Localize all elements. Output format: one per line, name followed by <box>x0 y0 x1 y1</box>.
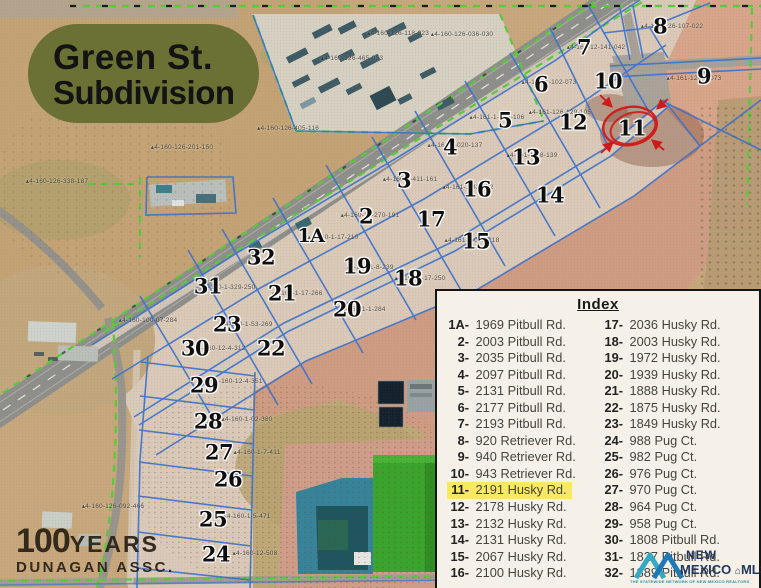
parcel-id: ▴4-160-126-405-116 <box>257 124 319 132</box>
parcel-id: ▴4-160-100-07-284 <box>119 316 178 324</box>
parcel-id: ▴4-160-126-201-150 <box>151 143 214 151</box>
index-entry-27: 27- 970 Pug Ct. <box>601 482 755 499</box>
parcel-id: ▴4-160-1-5-471 <box>223 512 270 520</box>
parcel-id: ▴4-160-12-508 <box>233 549 278 557</box>
parcel-id: ▴4-160-126-118-023 <box>367 29 429 37</box>
map-title-line2: Subdivision <box>53 76 235 109</box>
lot-label-14: 14 <box>536 183 564 208</box>
lot-label-28: 28 <box>194 409 222 434</box>
parcel-id: ▴4-161-12-141-042 <box>567 43 626 51</box>
index-entry-19: 19- 1972 Husky Rd. <box>601 350 755 367</box>
lot-index-panel: Index 1A- 1969 Pitbull Rd.2- 2003 Pitbul… <box>435 289 761 588</box>
parcel-id: ▴4-160-126-092-466 <box>82 502 145 510</box>
index-entry-15: 15- 2067 Husky Rd. <box>447 549 601 566</box>
lot-label-30: 30 <box>181 336 209 361</box>
lot-label-32: 32 <box>247 245 275 270</box>
lot-label-6: 6 <box>534 72 548 97</box>
parcel-id: ▴4-160-126-338-187 <box>26 177 89 185</box>
index-title: Index <box>437 296 759 313</box>
watermark-100: 100 <box>16 522 70 560</box>
parcel-id: ▴4-161-1-102-073 <box>522 78 577 86</box>
lot-label-18: 18 <box>394 266 422 291</box>
lot-label-23: 23 <box>213 312 241 337</box>
index-entry-4: 4- 2097 Pitbull Rd. <box>447 367 601 384</box>
index-entry-9: 9- 940 Retriever Rd. <box>447 449 601 466</box>
index-entry-14: 14- 2131 Husky Rd. <box>447 532 601 549</box>
lot-label-20: 20 <box>333 297 361 322</box>
lot-label-24: 24 <box>202 542 230 567</box>
index-entry-24: 24- 988 Pug Ct. <box>601 433 755 450</box>
lot-label-16: 16 <box>463 177 491 202</box>
subdivision-map: ▴4-160-126-118-023▴4-160-126-036-030▴4-1… <box>0 0 761 588</box>
lot-label-29: 29 <box>190 373 218 398</box>
parcel-id: ▴4-160-1-02-380 <box>221 415 272 423</box>
lot-label-21: 21 <box>268 281 296 306</box>
index-entry-7: 7- 2193 Pitbull Rd. <box>447 416 601 433</box>
lot-label-11: 11 <box>618 116 646 141</box>
lot-label-2: 2 <box>359 204 373 229</box>
index-entry-5: 5- 2131 Pitbull Rd. <box>447 383 601 400</box>
index-entry-25: 25- 982 Pug Ct. <box>601 449 755 466</box>
index-entry-6: 6- 2177 Pitbull Rd. <box>447 400 601 417</box>
lot-label-17: 17 <box>417 207 445 232</box>
lot-label-22: 22 <box>257 336 285 361</box>
lot-label-9: 9 <box>697 64 711 89</box>
parcel-id: ▴4-160-12-4-351 <box>211 377 262 385</box>
lot-label-12: 12 <box>559 110 587 135</box>
index-entry-17: 17- 2036 Husky Rd. <box>601 317 755 334</box>
index-entry-22: 22- 1875 Husky Rd. <box>601 400 755 417</box>
index-entry-20: 20- 1939 Husky Rd. <box>601 367 755 384</box>
index-entry-29: 29- 958 Pug Ct. <box>601 516 755 533</box>
index-entry-1A: 1A- 1969 Pitbull Rd. <box>447 317 601 334</box>
mls-text-mexico-mls: MEXICO ⌂MLS <box>680 562 761 577</box>
index-entry-16: 16- 2100 Husky Rd. <box>447 565 601 582</box>
mls-logo: NEW MEXICO ⌂MLS THE STATEWIDE NETWORK OF… <box>626 546 761 588</box>
parcel-id: ▴4-160-1-7-411 <box>234 448 281 456</box>
lot-label-25: 25 <box>199 507 227 532</box>
index-entry-2: 2- 2003 Pitbull Rd. <box>447 334 601 351</box>
parcel-id: ▴4-161-126-3-073 <box>667 74 722 82</box>
parcel-id: ▴4-161-126-107-022 <box>641 22 704 30</box>
index-entry-10: 10- 943 Retriever Rd. <box>447 466 601 483</box>
mls-tagline: THE STATEWIDE NETWORK OF NEW MEXICO REAL… <box>630 579 761 584</box>
index-entry-23: 23- 1849 Husky Rd. <box>601 416 755 433</box>
lot-label-27: 27 <box>205 440 233 465</box>
mls-text-new: NEW <box>686 548 717 562</box>
map-title-line1: Green St. <box>53 40 213 75</box>
dunagan-watermark: 100YEARS DUNAGAN ASSC. <box>16 524 175 575</box>
parcel-id: ▴4-160-126-465-053 <box>321 54 384 62</box>
lot-label-4: 4 <box>443 135 457 160</box>
index-entry-28: 28- 964 Pug Ct. <box>601 499 755 516</box>
index-entry-26: 26- 976 Pug Ct. <box>601 466 755 483</box>
lot-label-3: 3 <box>397 168 411 193</box>
index-entry-12: 12- 2178 Husky Rd. <box>447 499 601 516</box>
lot-label-19: 19 <box>343 254 371 279</box>
lot-label-1A: 1A <box>298 225 325 247</box>
lot-label-7: 7 <box>577 35 591 60</box>
watermark-years: YEARS <box>70 531 159 557</box>
lot-label-13: 13 <box>512 145 540 170</box>
lot-label-15: 15 <box>462 229 490 254</box>
mls-mountains-icon <box>632 552 686 580</box>
map-title: Green St. Subdivision <box>28 24 259 123</box>
index-entry-3: 3- 2035 Pitbull Rd. <box>447 350 601 367</box>
index-entry-21: 21- 1888 Husky Rd. <box>601 383 755 400</box>
lot-label-31: 31 <box>194 274 222 299</box>
lot-label-5: 5 <box>498 108 512 133</box>
index-entry-8: 8- 920 Retriever Rd. <box>447 433 601 450</box>
index-entry-18: 18- 2003 Husky Rd. <box>601 334 755 351</box>
index-column-right: 17- 2036 Husky Rd.18- 2003 Husky Rd.19- … <box>601 317 755 582</box>
lot-label-8: 8 <box>653 14 667 39</box>
lot-label-10: 10 <box>594 69 622 94</box>
watermark-org: DUNAGAN ASSC. <box>16 560 175 575</box>
index-column-left: 1A- 1969 Pitbull Rd.2- 2003 Pitbull Rd.3… <box>447 317 601 582</box>
index-entry-13: 13- 2132 Husky Rd. <box>447 516 601 533</box>
parcel-id: ▴4-160-126-036-030 <box>431 30 494 38</box>
index-entry-11: 11- 2191 Husky Rd. <box>447 482 572 499</box>
lot-label-26: 26 <box>214 467 242 492</box>
